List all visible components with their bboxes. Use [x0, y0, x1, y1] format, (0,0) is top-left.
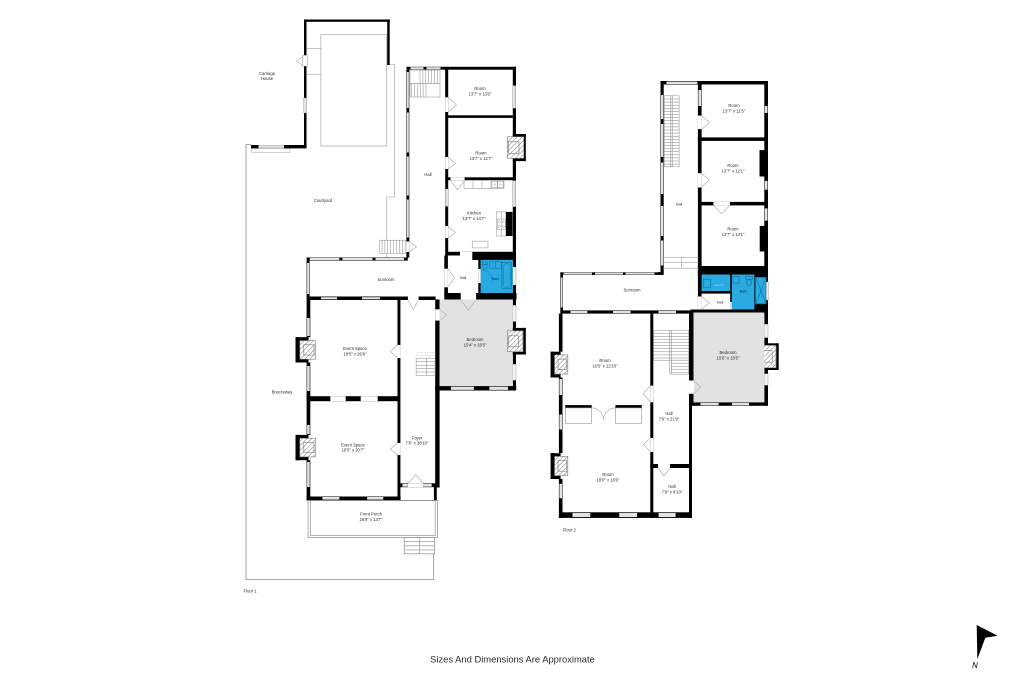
- svg-text:Hall: Hall: [676, 203, 683, 207]
- svg-text:13'7" x 13'1": 13'7" x 13'1": [722, 232, 745, 237]
- svg-text:Room: Room: [727, 227, 739, 232]
- svg-text:15'6" x 18'5": 15'6" x 18'5": [717, 355, 740, 360]
- svg-text:Room: Room: [599, 358, 611, 363]
- svg-text:Sunroom: Sunroom: [624, 288, 642, 293]
- svg-text:Breezeway: Breezeway: [272, 390, 294, 395]
- svg-text:Hall: Hall: [424, 172, 431, 177]
- svg-text:Room: Room: [728, 103, 740, 108]
- svg-text:Room: Room: [474, 86, 486, 91]
- svg-text:Hall: Hall: [717, 301, 724, 305]
- svg-text:Room: Room: [602, 472, 614, 477]
- svg-text:Bath: Bath: [740, 290, 748, 294]
- svg-text:26'9" x 13'7": 26'9" x 13'7": [360, 517, 383, 522]
- svg-text:Bedroom: Bedroom: [467, 337, 485, 342]
- svg-text:18'5" x 26'6": 18'5" x 26'6": [344, 351, 367, 356]
- svg-text:13'7" x 12'1": 13'7" x 12'1": [722, 168, 745, 173]
- svg-text:Laundry: Laundry: [714, 283, 725, 287]
- svg-text:13'7" x 14'7": 13'7" x 14'7": [463, 216, 486, 221]
- svg-text:Sunroom: Sunroom: [378, 277, 396, 282]
- svg-text:Hall: Hall: [460, 276, 467, 280]
- svg-text:16'5" x 20'7": 16'5" x 20'7": [342, 448, 365, 453]
- svg-text:Foyer: Foyer: [412, 435, 423, 440]
- svg-text:13'7" x 13'0": 13'7" x 13'0": [469, 91, 492, 96]
- svg-text:Sizes And Dimensions Are Appro: Sizes And Dimensions Are Approximate: [430, 654, 595, 665]
- svg-text:Event Space: Event Space: [341, 442, 365, 447]
- svg-text:7'8" x 9'10": 7'8" x 9'10": [662, 489, 683, 494]
- svg-text:13'7" x 12'7": 13'7" x 12'7": [470, 156, 493, 161]
- svg-text:N: N: [972, 661, 978, 670]
- svg-text:13'7" x 11'5": 13'7" x 11'5": [723, 108, 746, 113]
- svg-text:15'4" x 18'5": 15'4" x 18'5": [464, 342, 487, 347]
- svg-text:16'5" x 12'10": 16'5" x 12'10": [592, 363, 618, 368]
- svg-text:House: House: [261, 76, 274, 81]
- svg-text:Hall: Hall: [665, 411, 672, 416]
- svg-text:Room: Room: [475, 151, 487, 156]
- svg-text:Event Space: Event Space: [343, 346, 367, 351]
- svg-text:Courtyard: Courtyard: [314, 198, 333, 203]
- svg-text:Hall: Hall: [668, 484, 675, 489]
- svg-text:7'6" x 21'9": 7'6" x 21'9": [659, 416, 680, 421]
- svg-text:Kitchen: Kitchen: [467, 211, 482, 216]
- svg-text:Front Porch: Front Porch: [360, 512, 383, 517]
- svg-text:Room: Room: [727, 163, 739, 168]
- svg-text:18'0" x 18'6": 18'0" x 18'6": [597, 477, 620, 482]
- svg-text:Floor 2: Floor 2: [563, 528, 577, 533]
- svg-text:7'6" x 38'10": 7'6" x 38'10": [406, 441, 429, 446]
- svg-text:Floor 1: Floor 1: [244, 589, 258, 594]
- svg-text:Bath: Bath: [492, 277, 500, 281]
- svg-text:Bedroom: Bedroom: [720, 350, 738, 355]
